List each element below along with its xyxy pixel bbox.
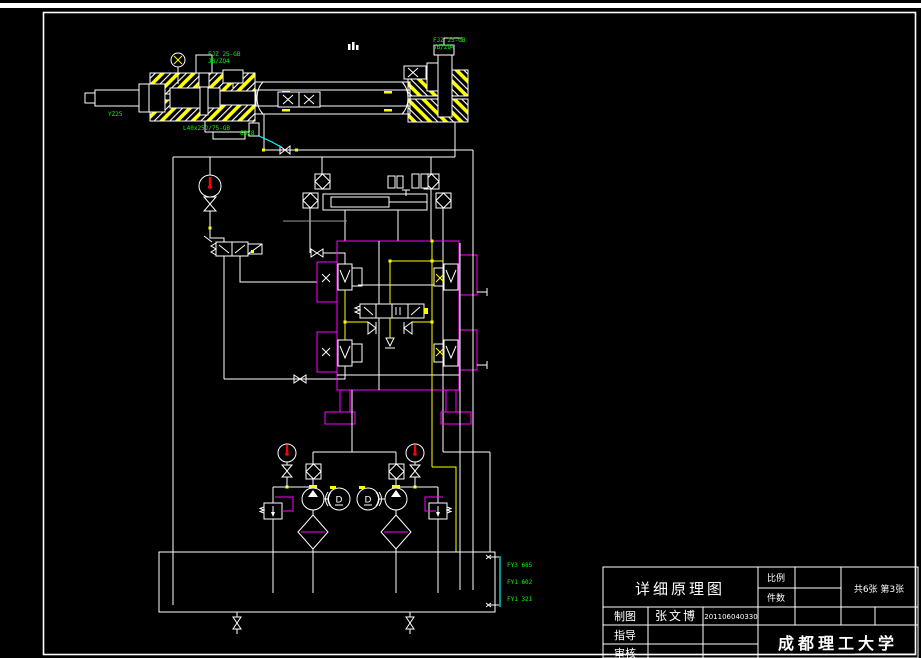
cylinder-assembly: FJZ 25-GB JB/ZQ4 YZ25 L40x25J/75-GB FJZ … [85, 37, 473, 157]
drawn-number: 201106040330 [704, 613, 757, 621]
mid-circuit [173, 157, 455, 605]
title-block: 详细原理图 比例 件数 共6张 第3张 制图 张文博 201106040330 … [603, 567, 918, 658]
cad-drawing-canvas[interactable]: FJZ 25-GB JB/ZQ4 YZ25 L40x25J/75-GB FJZ … [0, 0, 921, 658]
sheet-info: 共6张 第3张 [854, 583, 904, 595]
relief-valve-icon [260, 487, 293, 593]
level-mark-label: FY1 602 [507, 579, 533, 586]
pilot-valve-icon [355, 304, 428, 318]
leveling-cylinder [323, 174, 428, 210]
organization: 成都理工大学 [778, 634, 898, 653]
level-mark-label: FY3 685 [507, 562, 533, 569]
motor-icon: D [324, 486, 350, 510]
check-valve-icon [303, 174, 451, 208]
part-label: FJZ 25-GB [433, 37, 466, 44]
checker-label: 审核 [614, 646, 636, 658]
drawing-title: 详细原理图 [635, 580, 725, 598]
level-gauge: FY3 685 FY1 602 FY1 321 [486, 555, 533, 607]
check-valve-icon [306, 452, 404, 488]
pump-icon [385, 485, 407, 515]
svg-text:D: D [336, 496, 343, 506]
drawn-label: 制图 [614, 610, 636, 623]
part-label: FJZ 25-GB [208, 51, 241, 58]
filter-icon [381, 515, 411, 552]
motor-icon: D [357, 486, 385, 510]
level-mark-label: FY1 321 [507, 596, 533, 603]
cartridge-valve-icon [338, 264, 458, 366]
filter-icon [298, 515, 328, 552]
needle-valve-icon [311, 249, 323, 257]
pump-icon [302, 485, 324, 515]
pressure-gauge-icon [406, 444, 424, 487]
tank-drain-valve-icon [406, 612, 414, 634]
qty-label: 件数 [767, 592, 785, 604]
pressure-gauge-icon [278, 444, 296, 487]
part-label: YZ25 [108, 111, 123, 118]
drawn-name: 张文博 [655, 608, 697, 623]
tank-drain-valve-icon [233, 612, 241, 634]
leader-line [259, 136, 281, 147]
scale-label: 比例 [767, 572, 785, 584]
pressure-gauge-icon [199, 175, 221, 197]
advisor-label: 指导 [614, 628, 636, 642]
needle-valve-icon [204, 197, 216, 211]
directional-valve-icon [204, 236, 262, 256]
part-label: JB/ZQ4 [208, 58, 230, 65]
part-label: L40x25J/75-GB [183, 125, 230, 132]
oil-tank: FY3 685 FY1 602 FY1 321 [159, 552, 533, 634]
relief-valve-icon [425, 487, 451, 593]
svg-text:D: D [365, 496, 372, 506]
part-label: JB/ZQ4 [433, 44, 455, 51]
port-label: G3/8 [240, 130, 255, 137]
